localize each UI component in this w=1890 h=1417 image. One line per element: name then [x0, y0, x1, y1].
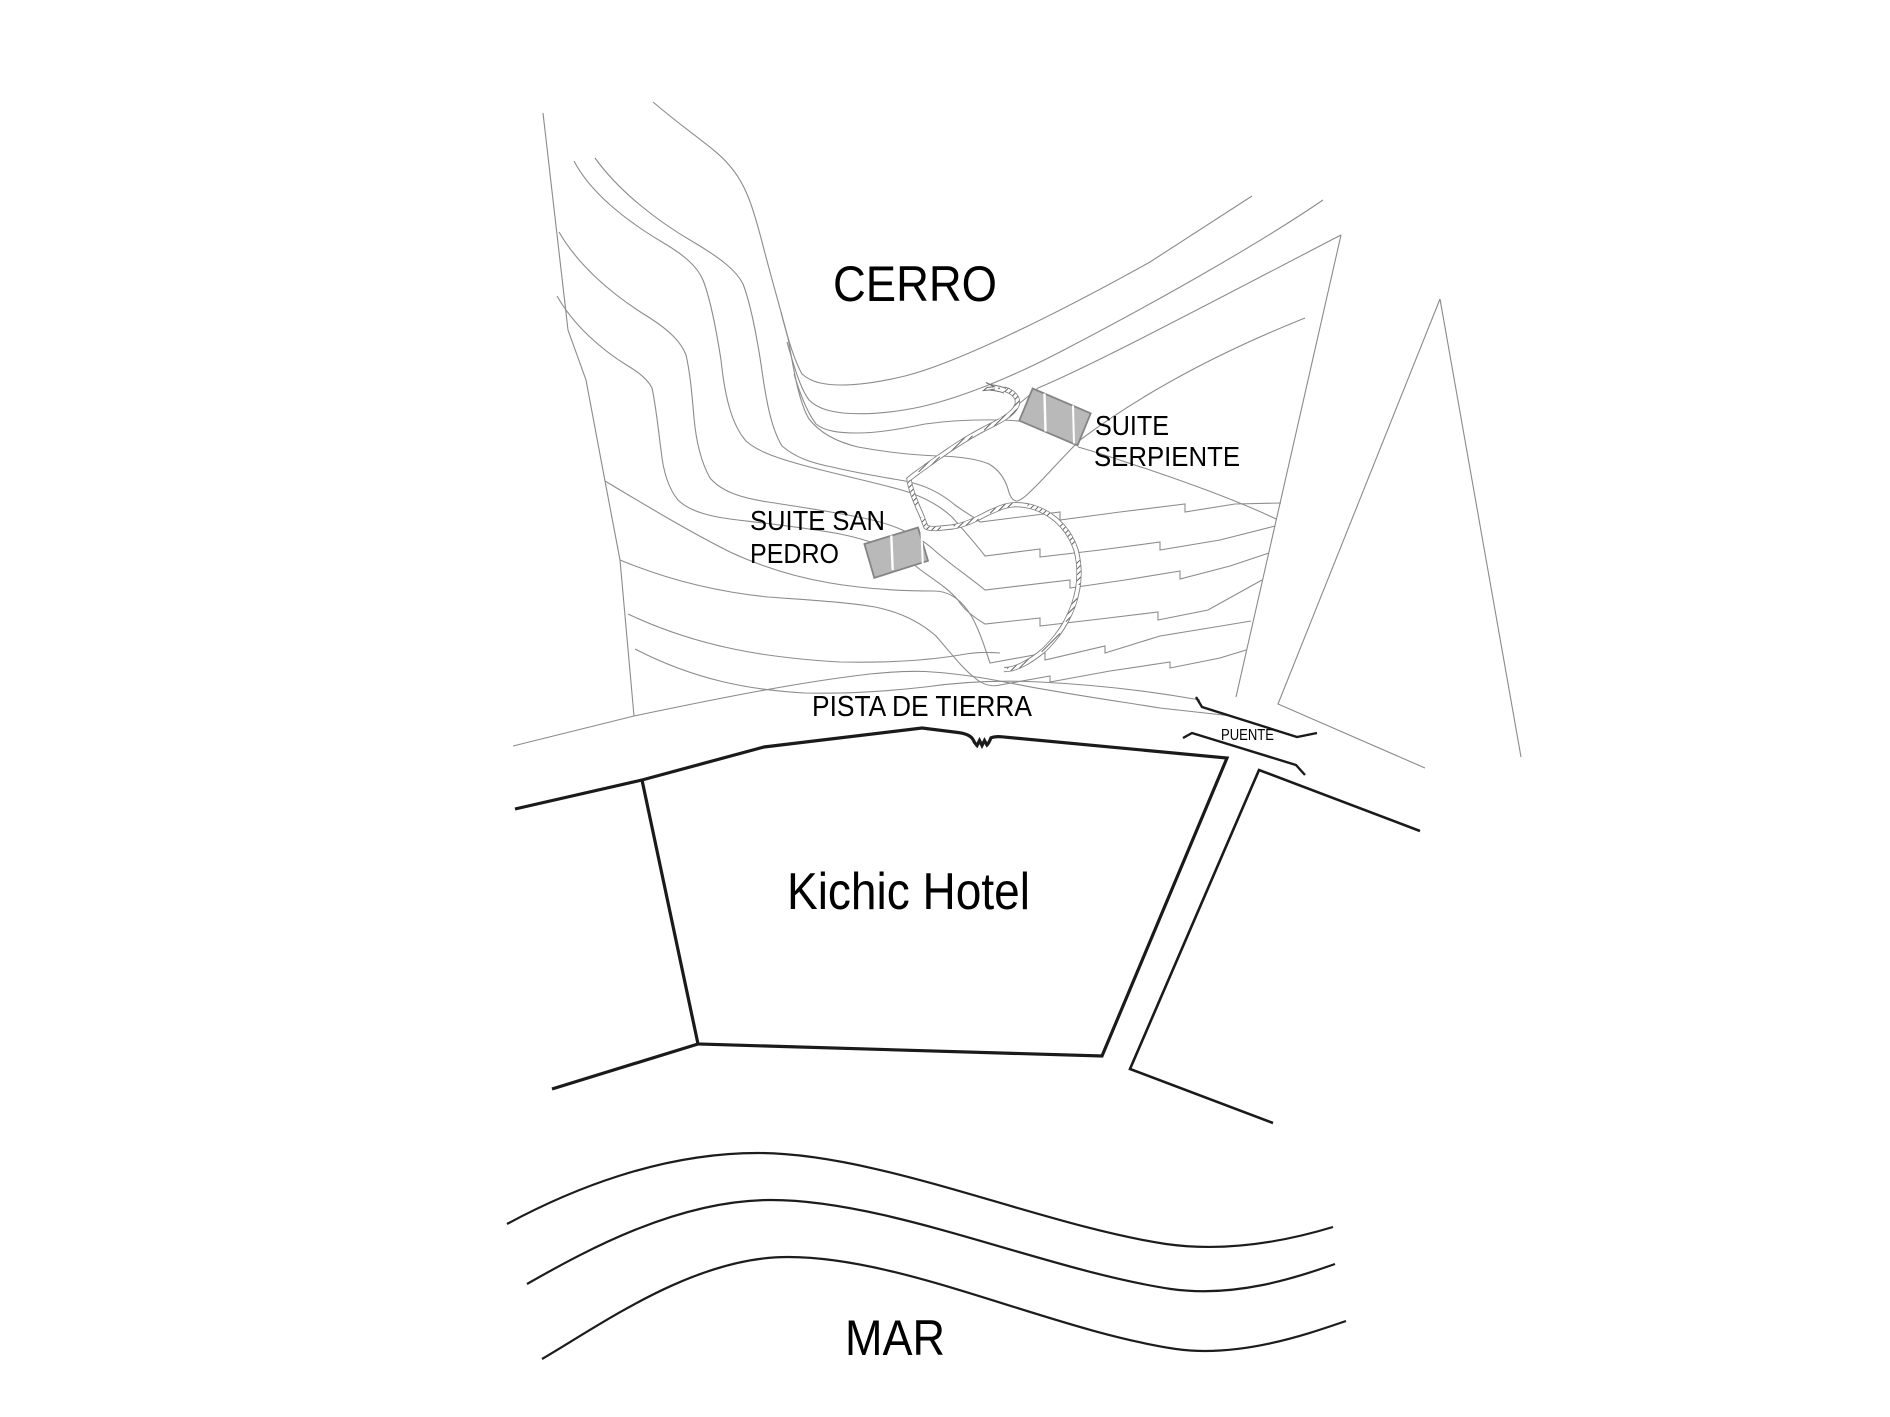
svg-text:SUITE: SUITE: [1095, 410, 1169, 441]
svg-text:PUENTE: PUENTE: [1221, 727, 1274, 744]
svg-text:CERRO: CERRO: [833, 256, 997, 312]
svg-text:SERPIENTE: SERPIENTE: [1094, 441, 1240, 472]
svg-text:Kichic Hotel: Kichic Hotel: [787, 863, 1030, 921]
svg-text:PEDRO: PEDRO: [750, 538, 839, 569]
svg-text:SUITE SAN: SUITE SAN: [750, 505, 885, 536]
svg-text:MAR: MAR: [845, 1310, 945, 1366]
svg-text:PISTA DE TIERRA: PISTA DE TIERRA: [812, 691, 1033, 723]
